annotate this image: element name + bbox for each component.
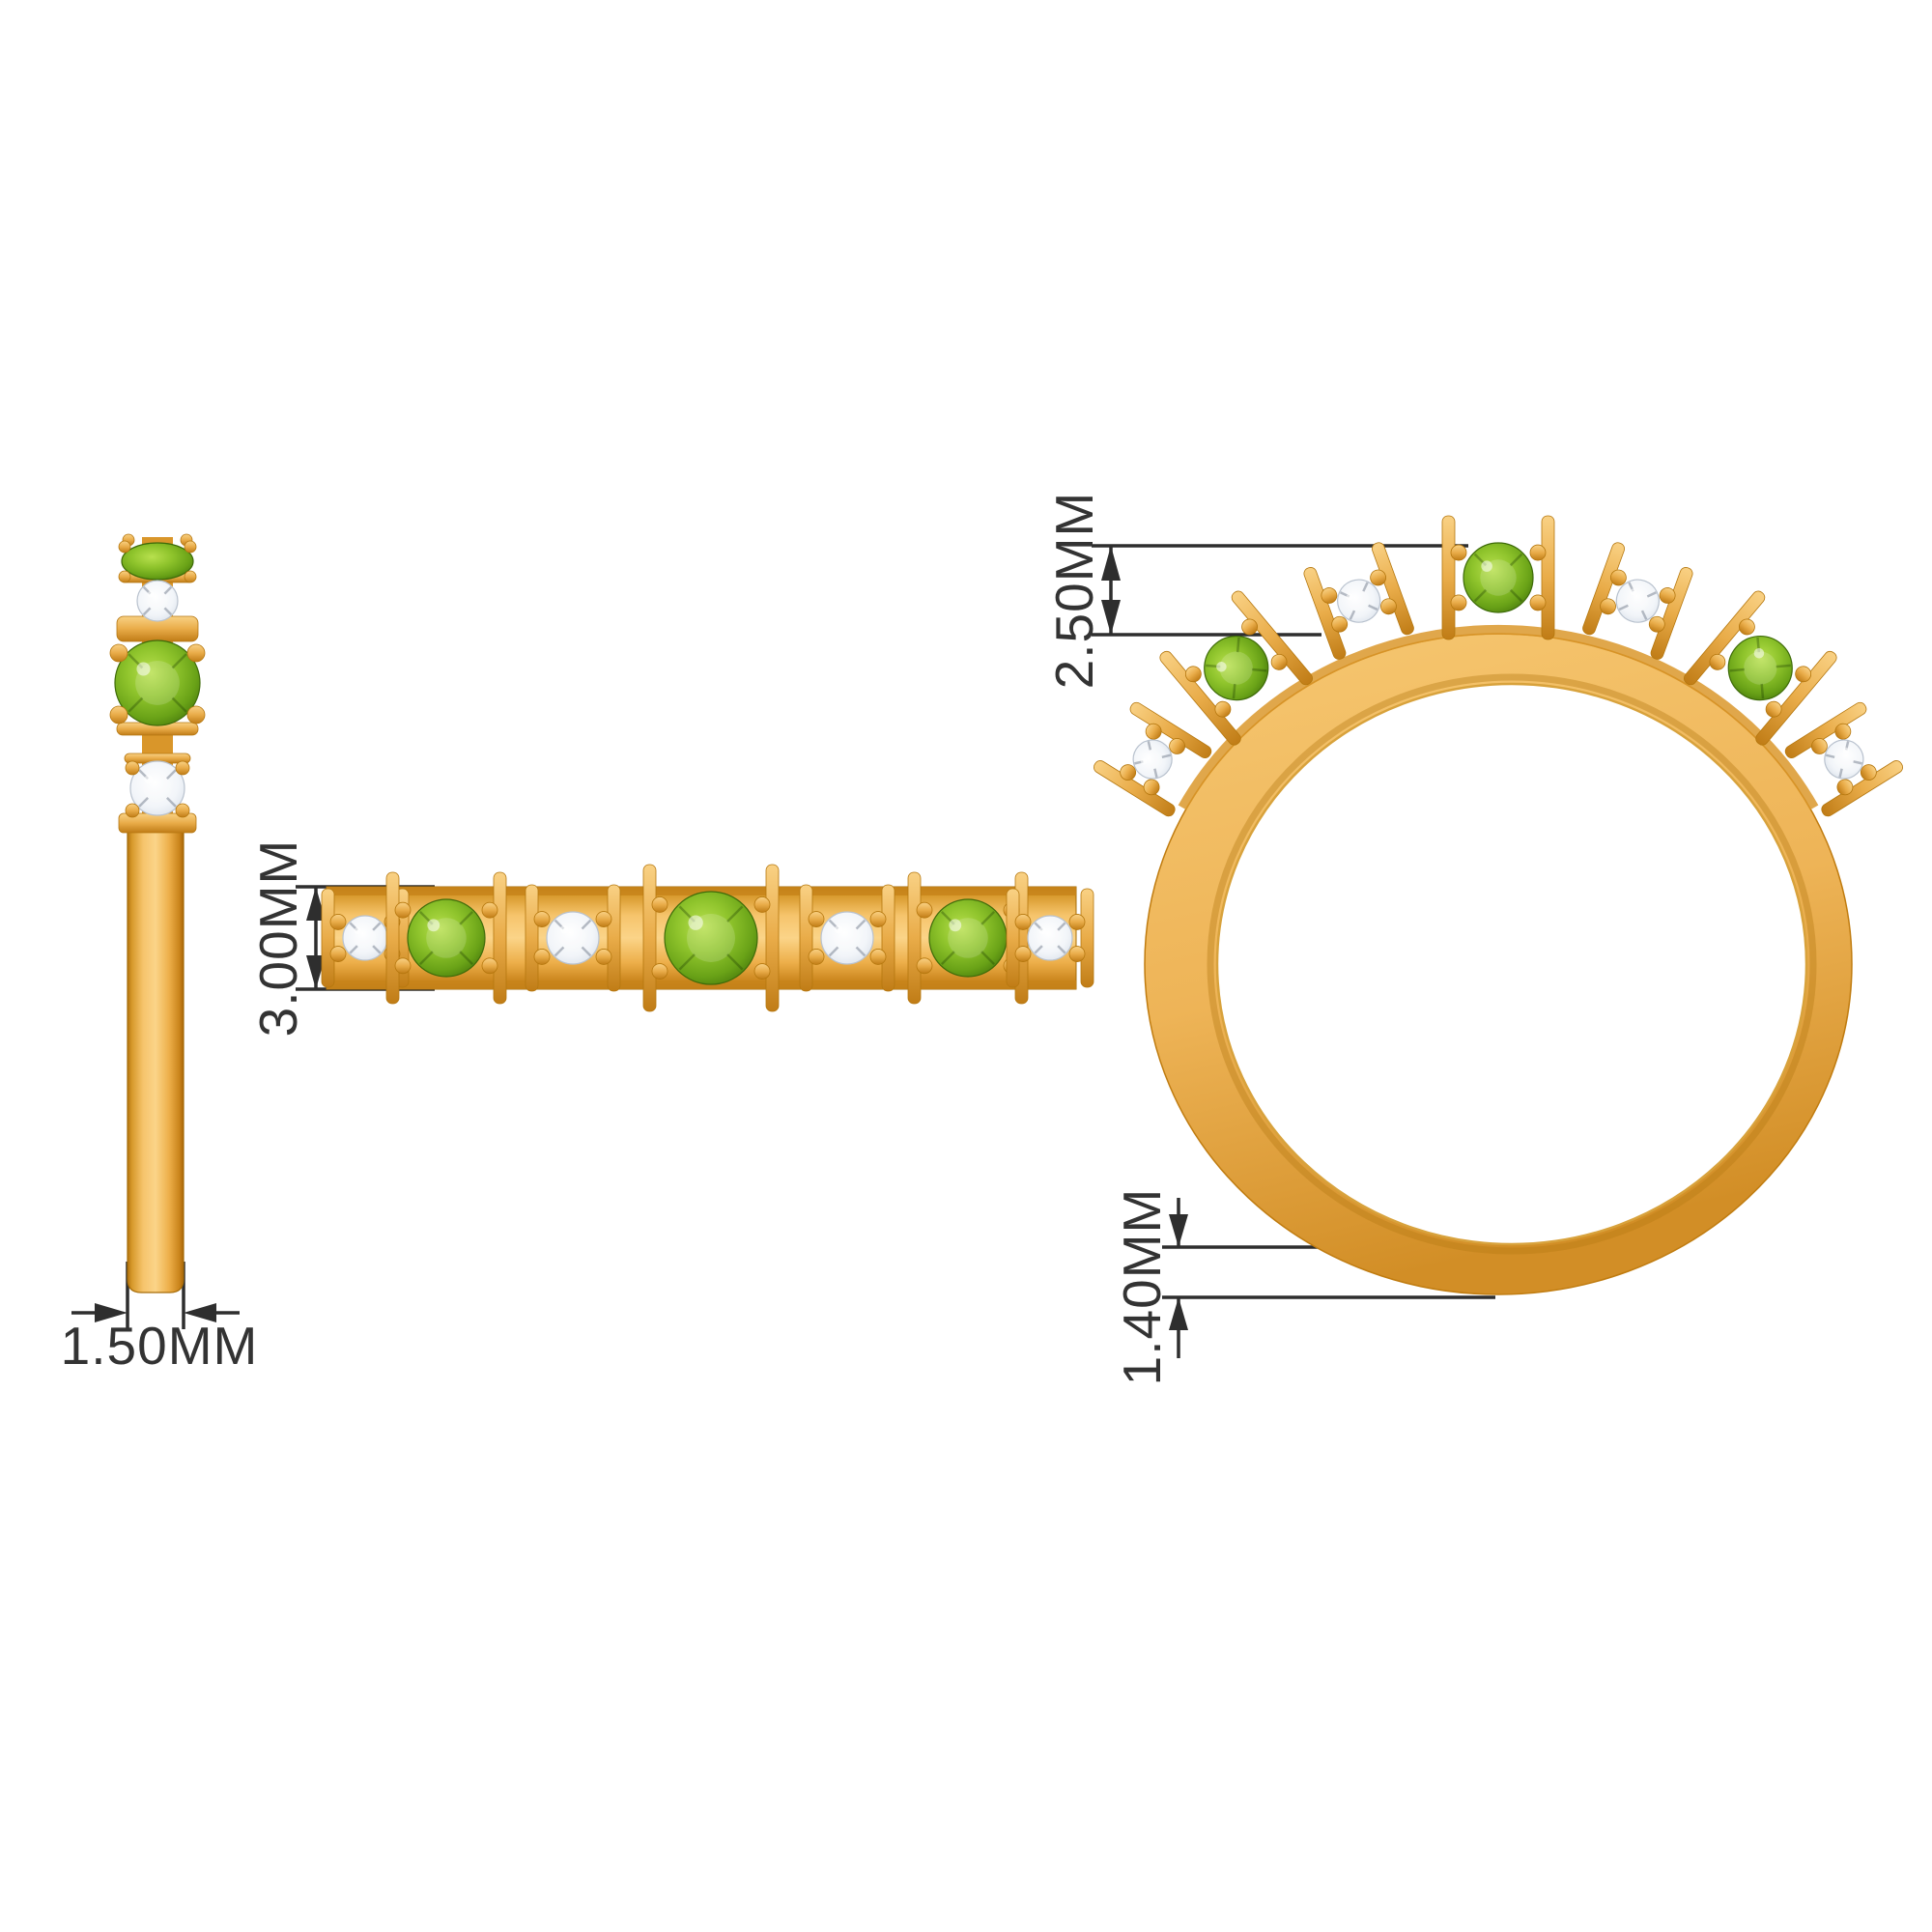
setting-rail <box>1081 889 1094 987</box>
prong <box>917 958 932 974</box>
setting-rail <box>1542 516 1554 639</box>
prong <box>809 949 824 964</box>
setting-rail <box>322 889 334 987</box>
setting-rail <box>526 885 538 991</box>
setting-rail <box>1442 516 1455 639</box>
setting-rail <box>1581 541 1626 636</box>
stone-sparkle <box>835 925 843 934</box>
prong <box>1015 914 1031 929</box>
prong <box>917 902 932 918</box>
prong <box>482 902 497 918</box>
prong <box>652 896 668 912</box>
stone-sparkle <box>560 925 569 934</box>
stone-sparkle <box>148 591 155 598</box>
band-thickness-label: 1.40MM <box>1112 1188 1172 1386</box>
stone-sparkle <box>1481 560 1492 572</box>
setting-rail <box>643 865 656 1011</box>
prong <box>330 914 346 929</box>
stone-sparkle <box>144 775 153 783</box>
stone-sparkle <box>427 919 440 931</box>
setting-rail <box>1649 566 1693 661</box>
prong <box>187 644 205 662</box>
setting-rail <box>1371 541 1415 636</box>
prong <box>1069 914 1085 929</box>
ring-side-view <box>110 534 205 1293</box>
prong <box>1530 545 1546 560</box>
setting-rail <box>908 872 921 1004</box>
setting-rail <box>882 885 895 991</box>
prong <box>754 964 770 980</box>
setting-rail <box>766 865 779 1011</box>
prong <box>187 706 205 724</box>
setting-rail <box>386 872 399 1004</box>
prong <box>395 958 411 974</box>
prong <box>176 804 189 817</box>
prong <box>870 912 886 927</box>
arrowhead-up <box>1169 1297 1188 1330</box>
prong <box>126 804 139 817</box>
diagram-canvas: 1.50MM 3.00MM 2.50MM 1.40MM <box>0 0 1932 1932</box>
ring-top-view <box>322 865 1094 1011</box>
stone-sparkle <box>355 927 361 934</box>
stone-sparkle <box>949 919 961 931</box>
prong <box>110 644 128 662</box>
prong <box>1451 595 1466 611</box>
stone-peridot <box>122 543 193 580</box>
arrowhead-up <box>1101 546 1121 581</box>
prong <box>119 541 130 553</box>
setting-rail <box>494 872 506 1004</box>
stone-sparkle <box>688 915 702 929</box>
ring-front-view <box>1092 516 1905 1294</box>
arrowhead-down <box>1169 1214 1188 1247</box>
prong <box>1451 545 1466 560</box>
prong <box>754 896 770 912</box>
prong <box>119 571 130 582</box>
ring-inner <box>1217 684 1806 1244</box>
band-width-label: 1.50MM <box>61 1316 259 1376</box>
prong <box>1069 947 1085 962</box>
crown-height-label: 2.50MM <box>1044 492 1104 690</box>
prong <box>870 949 886 964</box>
prong <box>110 706 128 724</box>
stone-sparkle <box>136 662 150 675</box>
prong <box>534 949 550 964</box>
product-dimension-diagram: 1.50MM 3.00MM 2.50MM 1.40MM <box>0 0 1932 1932</box>
band-profile <box>128 819 184 1293</box>
prong <box>126 761 139 775</box>
prong <box>652 964 668 980</box>
prong <box>185 571 196 582</box>
stone-sparkle <box>1039 927 1046 934</box>
setting-rail <box>800 885 812 991</box>
setting-rail <box>608 885 620 991</box>
prong <box>1015 947 1031 962</box>
prong <box>185 541 196 553</box>
prong <box>482 958 497 974</box>
arrowhead-down <box>1101 600 1121 635</box>
prong <box>596 912 611 927</box>
prong <box>395 902 411 918</box>
prong <box>809 912 824 927</box>
stone-setting <box>1442 516 1554 639</box>
prong <box>176 761 189 775</box>
prong <box>330 947 346 962</box>
prong <box>1530 595 1546 611</box>
side-view-stones <box>110 541 205 817</box>
setting-rail <box>1302 566 1347 661</box>
prong <box>534 912 550 927</box>
band-height-label: 3.00MM <box>248 839 308 1037</box>
setting-rail <box>1007 889 1019 987</box>
prong <box>596 949 611 964</box>
